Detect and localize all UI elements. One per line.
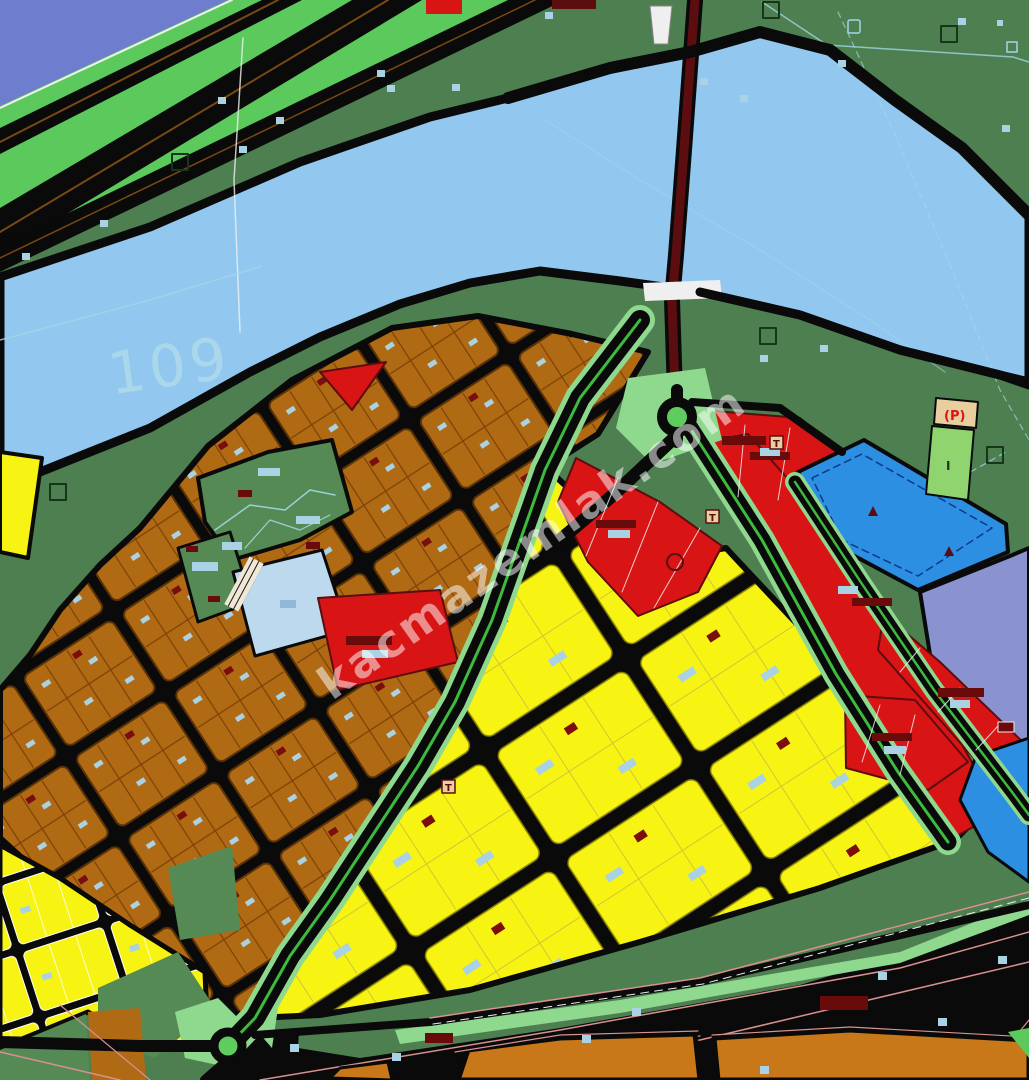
building-mark-red [820, 996, 868, 1010]
survey-dot [820, 345, 828, 352]
building-mark [296, 516, 320, 524]
road-mark-red [426, 0, 462, 14]
survey-dot [239, 146, 247, 153]
building-mark [938, 1018, 947, 1026]
building-mark [608, 530, 630, 538]
building-mark-red [998, 722, 1014, 732]
survey-dot [1002, 125, 1010, 132]
building-mark-red [306, 542, 320, 549]
building-mark [950, 700, 970, 708]
road-mark-darkred [552, 0, 596, 9]
building-mark-red [722, 436, 766, 445]
building-mark [192, 562, 218, 571]
transformer-label: T [773, 439, 780, 450]
building-mark [362, 650, 388, 658]
survey-dot [740, 95, 748, 102]
building-mark [884, 746, 906, 754]
building-mark [582, 1035, 591, 1043]
building-mark-red [852, 598, 892, 606]
building-mark-red [938, 688, 984, 697]
survey-dot [997, 20, 1003, 26]
building-mark [838, 586, 858, 594]
zoning-map-canvas: (P)ITTT [0, 0, 1029, 1080]
survey-dot [545, 12, 553, 19]
survey-dot [452, 84, 460, 91]
survey-dot [700, 78, 708, 85]
building-mark-red [208, 596, 220, 602]
survey-dot [377, 70, 385, 77]
building-mark-red [596, 520, 636, 528]
building-mark [760, 1066, 769, 1074]
building-mark [632, 1008, 641, 1016]
roundabout-south [214, 1032, 242, 1060]
sports-label: I [946, 459, 950, 473]
survey-dot [218, 97, 226, 104]
survey-dot [22, 253, 30, 260]
building-mark [290, 1044, 299, 1052]
building-mark-red [872, 733, 912, 741]
building-mark [280, 600, 296, 608]
transformer-label: T [709, 513, 716, 524]
survey-dot [760, 355, 768, 362]
building-mark-red [238, 490, 252, 497]
building-mark-red [186, 546, 198, 552]
building-mark [878, 972, 887, 980]
roundabout [662, 402, 692, 432]
building-mark-red [425, 1033, 453, 1043]
zoning-map[interactable]: (P)ITTT 109 kacmazemlak.com [0, 0, 1029, 1080]
survey-dot [276, 117, 284, 124]
survey-dot [838, 60, 846, 67]
building-mark-red [346, 636, 392, 645]
building-mark [998, 956, 1007, 964]
building-mark [222, 542, 242, 550]
building-mark [392, 1053, 401, 1061]
survey-dot [100, 220, 108, 227]
survey-dot [958, 18, 966, 25]
fountain-icon [650, 6, 672, 44]
parking-label: (P) [944, 409, 965, 424]
building-mark [258, 468, 280, 476]
survey-dot [387, 85, 395, 92]
transformer-label: T [445, 783, 452, 794]
